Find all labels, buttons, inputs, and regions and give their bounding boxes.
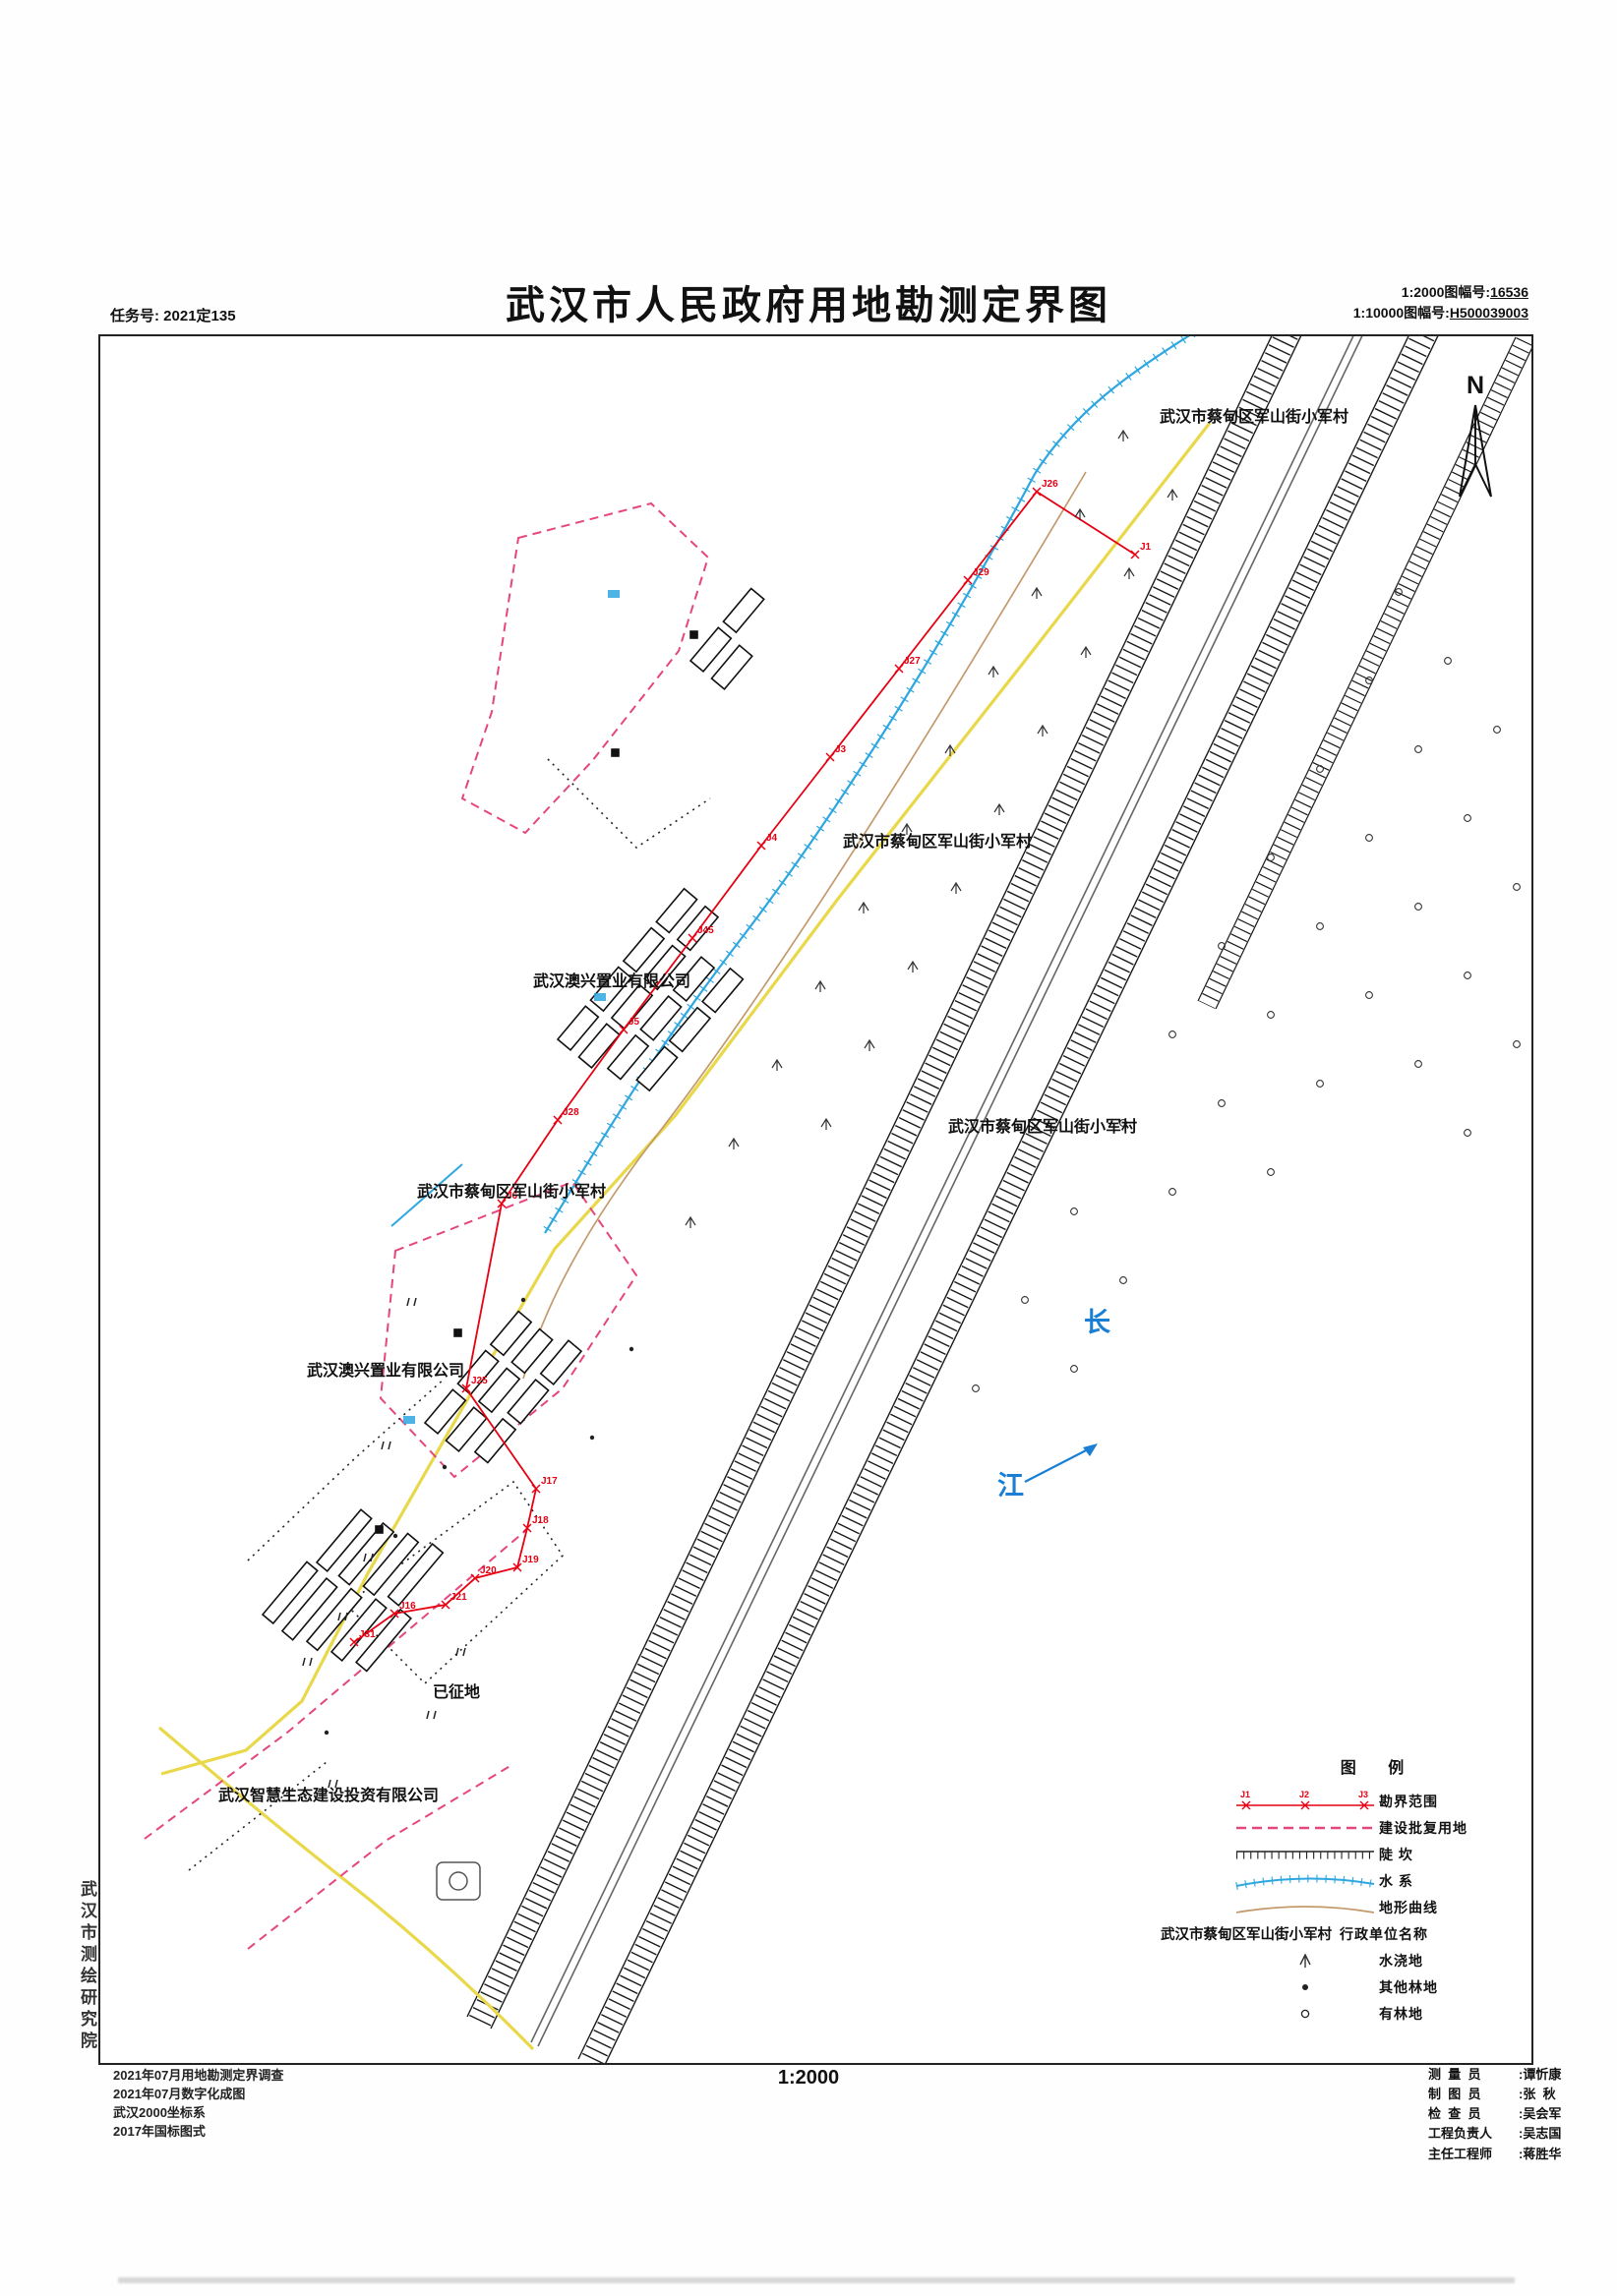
survey-boundary-symbol: J1 J2 J3 bbox=[1231, 1789, 1379, 1814]
credit-row: 检 查 员:吴会军 bbox=[1428, 2104, 1561, 2124]
credit-row: 工程负责人:吴志国 bbox=[1428, 2124, 1561, 2144]
svg-text:J18: J18 bbox=[532, 1515, 549, 1526]
legend-item-forest: 有林地 bbox=[1231, 2000, 1527, 2027]
legend-label: 地形曲线 bbox=[1379, 1898, 1438, 1917]
legend-item-water: 水 系 bbox=[1231, 1867, 1527, 1894]
svg-text:J31: J31 bbox=[359, 1629, 376, 1640]
legend-label: 有林地 bbox=[1379, 2004, 1423, 2024]
label-requisitioned: 已征地 bbox=[433, 1678, 480, 1702]
credit-row: 主任工程师:蒋胜华 bbox=[1428, 2145, 1561, 2164]
svg-text:J29: J29 bbox=[973, 567, 989, 578]
institute-vertical-label: 武汉市测绘研究院 bbox=[75, 1880, 99, 2053]
legend-item-other-forest: 其他林地 bbox=[1231, 1973, 1527, 2000]
irrigated-land-symbol bbox=[1231, 1948, 1379, 1973]
label-village-w: 武汉市蔡甸区军山街小军村 bbox=[417, 1178, 606, 1202]
legend-item-contour: 地形曲线 bbox=[1231, 1894, 1527, 1920]
scan-artifact bbox=[118, 2277, 1515, 2283]
sheet-2000-label: 1:2000图幅号: bbox=[1402, 284, 1490, 300]
sheet-number-2000: 1:2000图幅号:16536 bbox=[1353, 282, 1528, 303]
legend-item-irrigated: 水浇地 bbox=[1231, 1947, 1527, 1973]
note-line: 武汉2000坐标系 bbox=[113, 2104, 283, 2123]
credit-name: 谭忻康 bbox=[1523, 2065, 1561, 2085]
forest-symbol bbox=[1231, 2001, 1379, 2027]
legend-marker-j3: J3 bbox=[1358, 1790, 1368, 1799]
legend-item-survey-boundary: J1 J2 J3 勘界范围 bbox=[1231, 1788, 1527, 1814]
sheet-number-10000: 1:10000图幅号:H500039003 bbox=[1353, 303, 1528, 324]
label-village-e: 武汉市蔡甸区军山街小军村 bbox=[948, 1113, 1137, 1137]
legend-label: 行政单位名称 bbox=[1340, 1924, 1428, 1944]
credit-name: 张 秋 bbox=[1523, 2085, 1555, 2104]
legend-label: 水浇地 bbox=[1379, 1951, 1423, 1971]
approved-land-dashed-lines bbox=[145, 503, 708, 1949]
legend-label: 陡 坎 bbox=[1379, 1845, 1413, 1864]
page: 任务号: 2021定135 武汉市人民政府用地勘测定界图 1:2000图幅号:1… bbox=[0, 0, 1617, 2296]
approved-land-symbol bbox=[1231, 1815, 1379, 1841]
label-company-zhihui: 武汉智慧生态建设投资有限公司 bbox=[218, 1782, 439, 1805]
legend-marker-j1: J1 bbox=[1240, 1790, 1250, 1799]
svg-text:J16: J16 bbox=[399, 1601, 416, 1612]
parcel-dotted-lines bbox=[189, 759, 710, 1870]
sheet-10000-value: H500039003 bbox=[1450, 305, 1528, 321]
scale-label: 1:2000 bbox=[0, 2067, 1617, 2090]
water-symbol bbox=[1231, 1868, 1379, 1894]
svg-text:J17: J17 bbox=[541, 1476, 558, 1487]
credit-name: 吴志国 bbox=[1523, 2124, 1561, 2144]
svg-text:J4: J4 bbox=[766, 833, 778, 844]
label-company-aoxing-s: 武汉澳兴置业有限公司 bbox=[307, 1357, 464, 1381]
legend-item-approved-land: 建设批复用地 bbox=[1231, 1814, 1527, 1841]
svg-text:J26: J26 bbox=[1042, 479, 1058, 490]
north-label: N bbox=[1467, 372, 1484, 399]
credit-row: 制 图 员:张 秋 bbox=[1428, 2085, 1561, 2104]
legend-item-admin-name: 武汉市蔡甸区军山街小军村 行政单位名称 bbox=[1161, 1920, 1527, 1947]
sheet-info: 1:2000图幅号:16536 1:10000图幅号:H500039003 bbox=[1353, 282, 1528, 324]
map-frame: J1J26J29J27J3J4J45J5J28J6J25J17J18J19J20… bbox=[98, 334, 1533, 2065]
svg-text:J5: J5 bbox=[629, 1017, 640, 1028]
other-forest-symbol bbox=[1231, 1974, 1379, 2000]
legend-title: 图 例 bbox=[1231, 1754, 1527, 1778]
river-char-1: 长 bbox=[1084, 1308, 1111, 1337]
admin-name-example: 武汉市蔡甸区军山街小军村 bbox=[1161, 1923, 1332, 1944]
river-flow-arrow bbox=[1025, 1447, 1092, 1482]
river-label: 长 江 bbox=[997, 1308, 1111, 1501]
credit-name: 蒋胜华 bbox=[1523, 2145, 1561, 2164]
survey-boundary-layer: J1J26J29J27J3J4J45J5J28J6J25J17J18J19J20… bbox=[303, 431, 1520, 1788]
note-line: 2017年国标图式 bbox=[113, 2123, 283, 2142]
river-char-2: 江 bbox=[997, 1471, 1024, 1501]
legend-label: 建设批复用地 bbox=[1379, 1818, 1467, 1838]
label-village-mid: 武汉市蔡甸区军山街小军村 bbox=[843, 828, 1032, 852]
legend-item-scarp: 陡 坎 bbox=[1231, 1841, 1527, 1867]
stream-line bbox=[391, 336, 1212, 1233]
credit-name: 吴会军 bbox=[1523, 2104, 1561, 2124]
credit-role: 工程负责人 bbox=[1428, 2124, 1519, 2144]
credit-role: 检 查 员 bbox=[1428, 2104, 1519, 2124]
legend-label: 其他林地 bbox=[1379, 1977, 1438, 1997]
svg-text:J45: J45 bbox=[697, 925, 714, 936]
svg-text:J3: J3 bbox=[835, 744, 847, 755]
sheet-10000-label: 1:10000图幅号: bbox=[1353, 305, 1450, 321]
small-structure bbox=[437, 1862, 480, 1900]
svg-text:J28: J28 bbox=[563, 1107, 579, 1118]
legend-label: 水 系 bbox=[1379, 1871, 1413, 1891]
svg-text:J25: J25 bbox=[471, 1376, 488, 1386]
scarp-symbol bbox=[1231, 1842, 1379, 1867]
svg-text:J21: J21 bbox=[450, 1592, 467, 1603]
legend-label: 勘界范围 bbox=[1379, 1792, 1438, 1811]
credits-block: 测 量 员:谭忻康 制 图 员:张 秋 检 查 员:吴会军 工程负责人:吴志国 … bbox=[1428, 2065, 1561, 2164]
credit-role: 主任工程师 bbox=[1428, 2145, 1519, 2164]
sheet-2000-value: 16536 bbox=[1490, 284, 1528, 300]
svg-text:J20: J20 bbox=[480, 1565, 497, 1576]
contour-symbol bbox=[1231, 1895, 1379, 1920]
label-company-aoxing-n: 武汉澳兴置业有限公司 bbox=[533, 968, 690, 991]
legend-marker-j2: J2 bbox=[1299, 1790, 1309, 1799]
svg-text:J27: J27 bbox=[904, 656, 921, 667]
credit-row: 测 量 员:谭忻康 bbox=[1428, 2065, 1561, 2085]
credit-role: 测 量 员 bbox=[1428, 2065, 1519, 2085]
legend: 图 例 J1 J2 J3 勘界范围 bbox=[1231, 1754, 1527, 2027]
svg-text:J19: J19 bbox=[522, 1555, 539, 1565]
label-village-ne: 武汉市蔡甸区军山街小军村 bbox=[1160, 403, 1348, 427]
credit-role: 制 图 员 bbox=[1428, 2085, 1519, 2104]
svg-text:J1: J1 bbox=[1140, 542, 1152, 553]
